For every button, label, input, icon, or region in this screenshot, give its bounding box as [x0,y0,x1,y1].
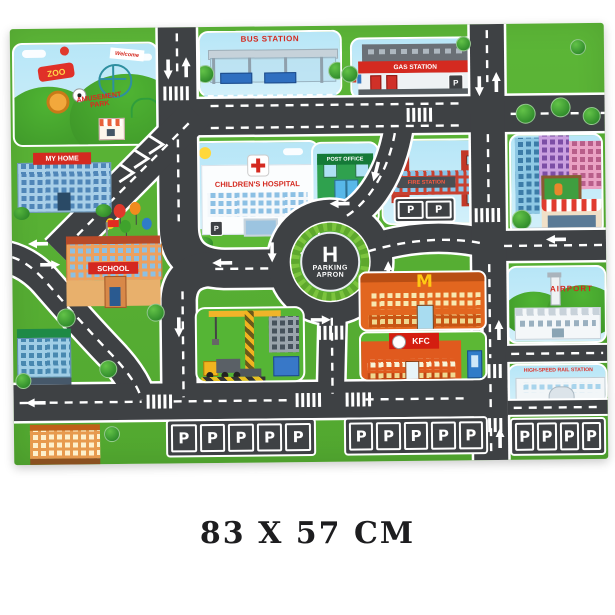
school-sign: SCHOOL [88,262,138,275]
kfc-sign: KFC [389,333,439,350]
tree-icon [104,426,120,442]
parking-stall: P [431,421,456,449]
bush [14,207,30,220]
tree-icon [57,308,76,327]
parking-stall: P [537,422,557,450]
balloon-icon [130,202,141,215]
mcdonalds-arches-icon: M [412,274,436,292]
mcdonalds-door [417,305,434,331]
tree-icon [570,39,586,55]
roundabout-center: H PARKING APRON [300,231,361,292]
mcdonalds-building: M [358,270,487,331]
helipad-h-label: H [322,245,338,265]
parking-stall: P [559,422,579,450]
crane-hook [212,339,219,345]
parking-row: P P P P P [166,418,316,458]
shed [273,356,299,376]
play-mat: ZOO Welcome AMUSEMENT PARK BUS STATION G… [10,23,609,465]
size-caption: 83 X 57 CM [0,516,615,551]
tree-icon [583,107,601,125]
construction-site [195,306,306,383]
my-home-sign: MY HOME [33,152,91,165]
parking-row: P P P P P [344,416,488,456]
parking-stall: P [458,421,483,449]
kfc-door [405,361,419,382]
parking-stall: P [285,423,311,451]
construction-building [269,316,299,352]
kfc-label: KFC [412,336,430,346]
tree-icon [341,65,358,82]
kfc-block: KFC [359,330,488,381]
parking-row: P P P P [510,417,606,456]
parking-stall: P [582,422,602,450]
flag-icon [108,220,119,227]
balloon-icon [120,220,131,233]
parking-stall: P [199,424,225,452]
parking-stall: P [228,424,254,452]
apartment-building [30,424,100,465]
phone-booth [467,350,482,378]
balloon-icon [142,218,152,230]
product-photo: ZOO Welcome AMUSEMENT PARK BUS STATION G… [0,0,615,615]
tree-icon [99,360,117,378]
tree-icon [147,304,165,322]
colonel-face-icon [392,335,406,349]
parking-stall: P [376,422,401,450]
tree-icon [15,373,31,389]
school-building: SCHOOL [66,236,161,307]
parking-stall: P [349,422,374,450]
parking-apron-label2: APRON [316,272,344,279]
my-home-building: MY HOME [17,152,110,211]
parking-stall: P [404,422,429,450]
parking-stall: P [257,423,283,451]
tree-icon [550,97,570,117]
parking-stall: P [171,424,197,452]
parking-stall: P [515,423,535,451]
tree-icon [516,104,536,124]
tree-icon [456,36,471,51]
balloon-icon [114,204,126,218]
hazard-strip [201,376,265,383]
